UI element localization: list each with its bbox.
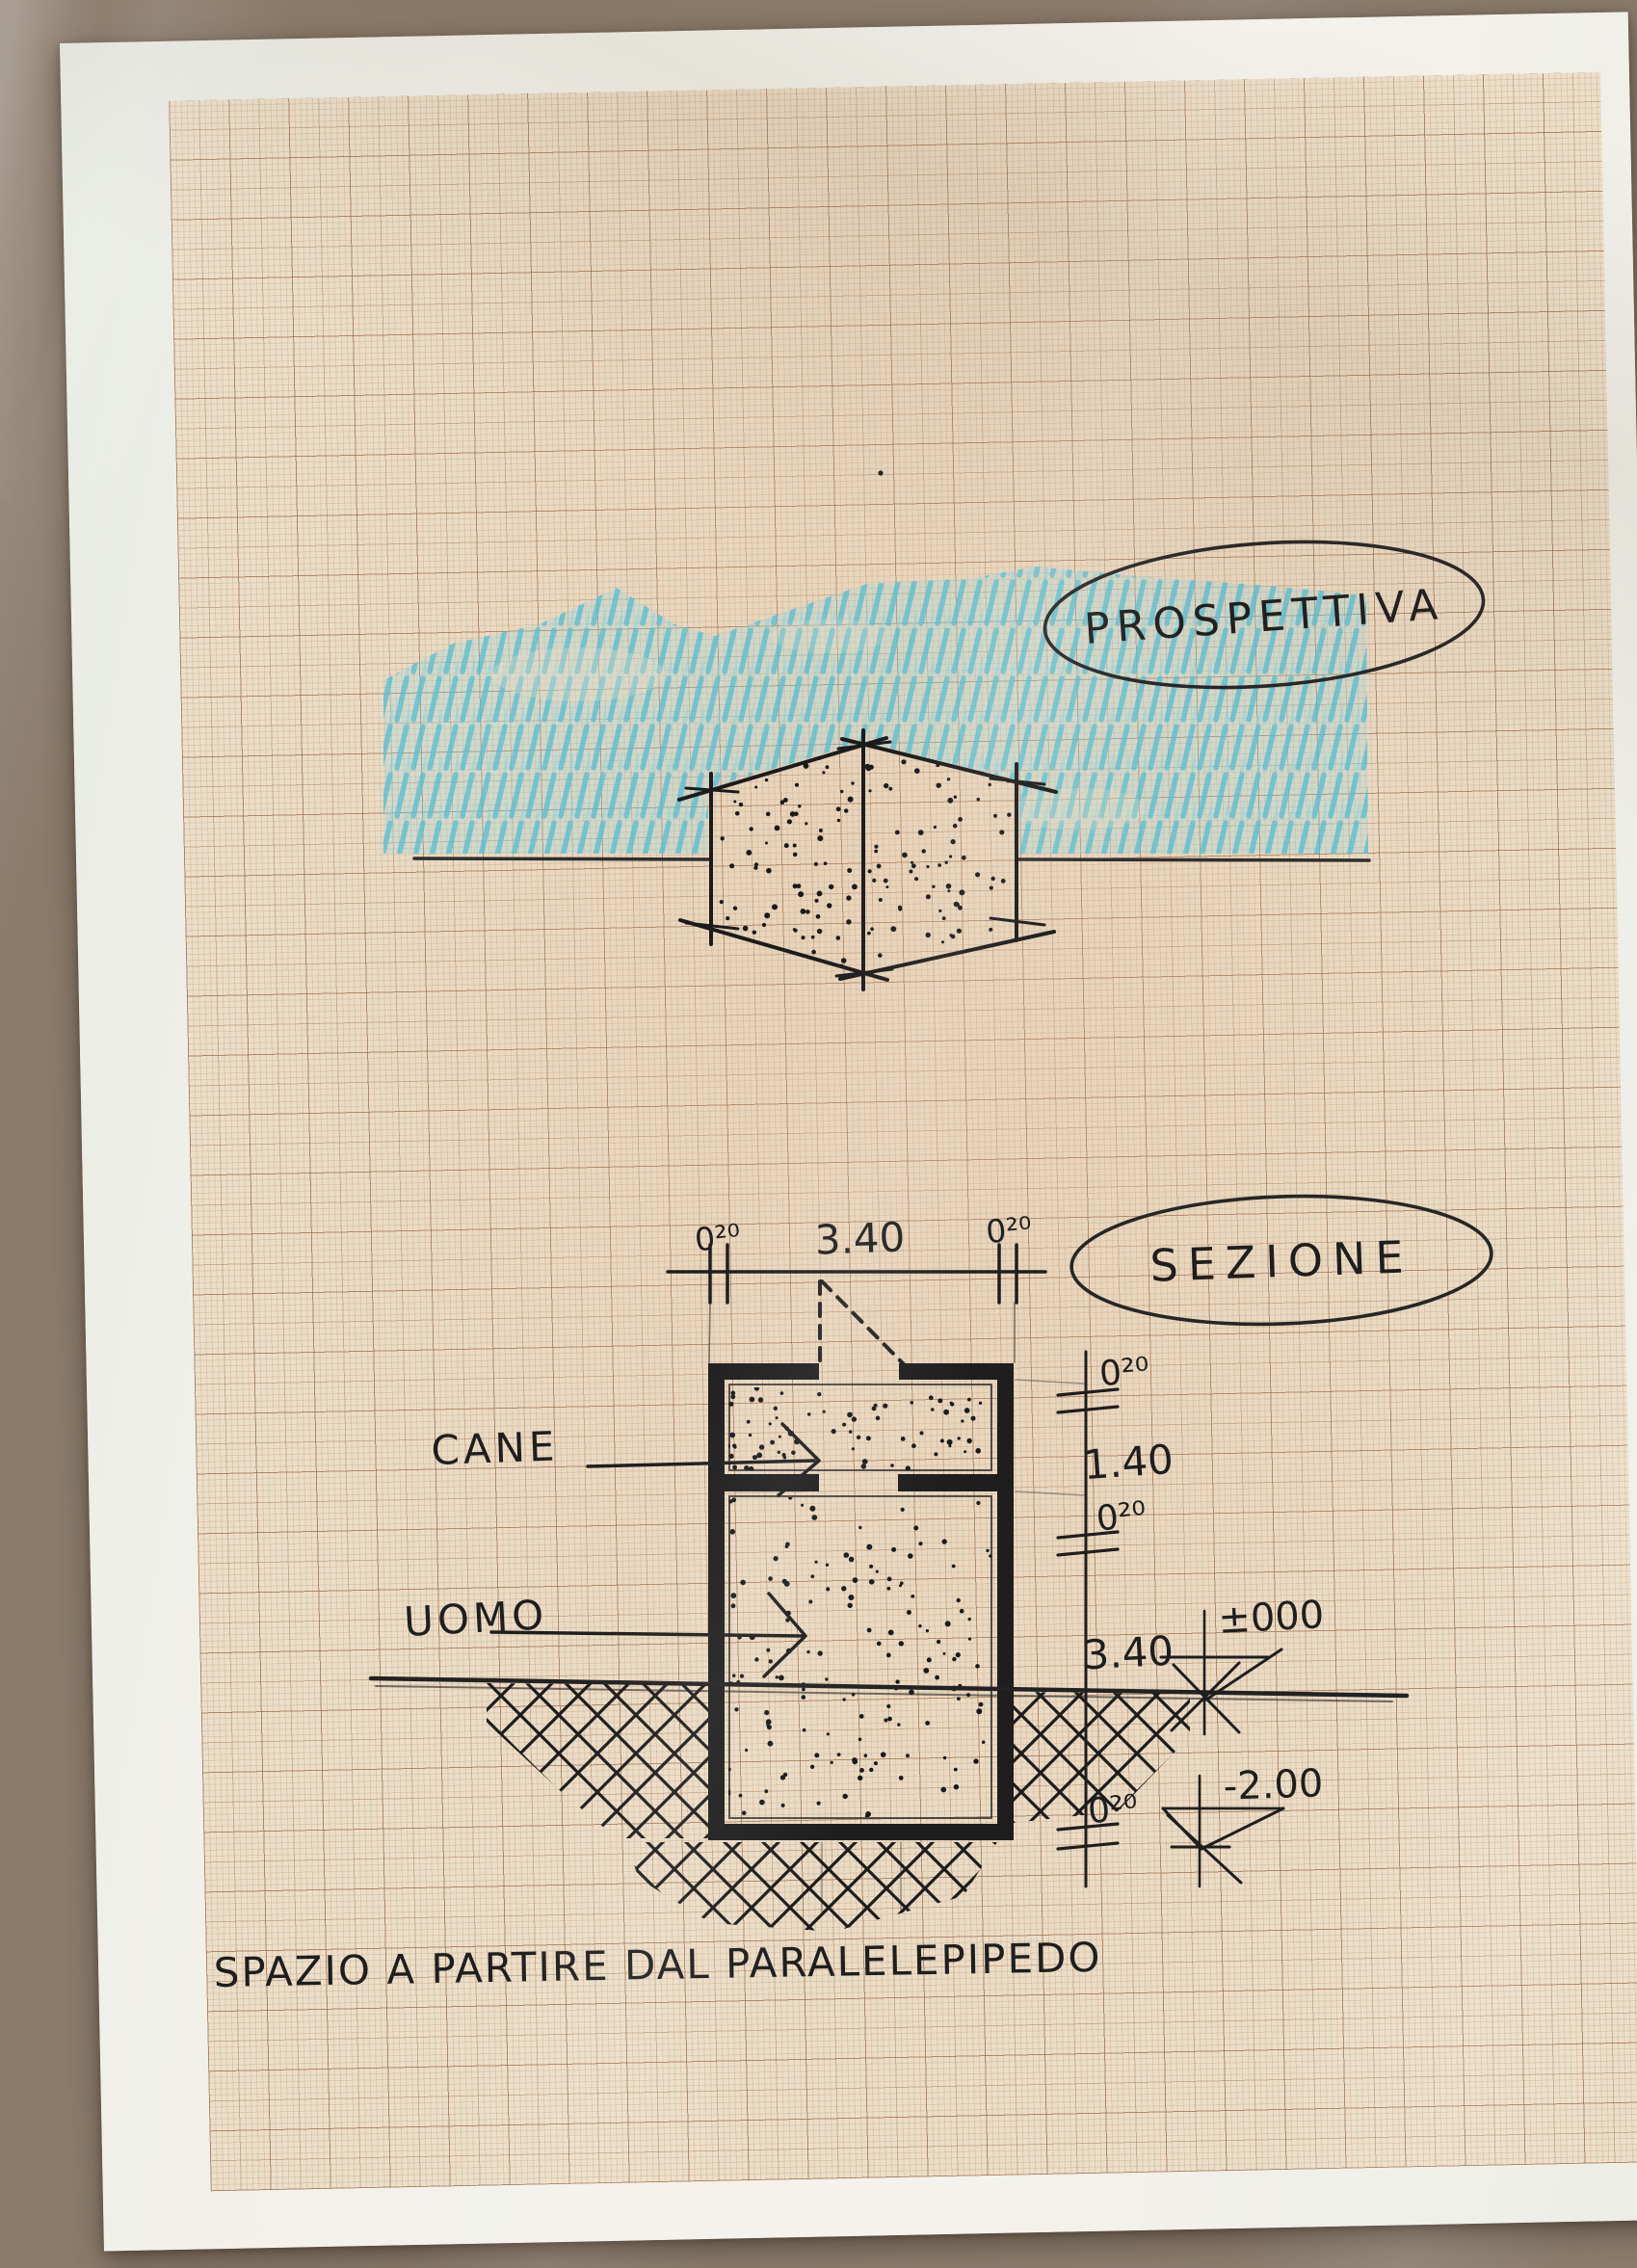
dim-right-wall-bottom: 0²⁰	[1086, 1788, 1139, 1832]
perspective-drawing: PROSPETTIVA	[383, 470, 1489, 989]
inner-outline-top-chamber	[729, 1385, 991, 1470]
dim-right-uomo-height: 3.40	[1082, 1627, 1175, 1679]
photo-background: PROSPETTIVA SEZIONE 0²⁰ 3.40 0²⁰	[0, 0, 1637, 2268]
sketch-drawing: PROSPETTIVA SEZIONE 0²⁰ 3.40 0²⁰	[0, 0, 1637, 2268]
divider-wall-left	[725, 1474, 819, 1491]
dim-top-left: 0²⁰	[693, 1217, 742, 1259]
sezione-label: SEZIONE	[1149, 1230, 1414, 1291]
chamber-top-stipple	[726, 1385, 982, 1471]
dim-top-middle: 3.40	[814, 1213, 906, 1263]
divider-wall-right	[898, 1474, 997, 1491]
caption-text: SPAZIO A PARTIRE DAL PARALELEPIPEDO	[213, 1934, 1102, 1996]
sezione-bubble: SEZIONE	[1069, 1189, 1493, 1331]
cane-label: CANE	[431, 1422, 560, 1474]
top-dimension-line	[668, 1245, 1045, 1362]
level-bottom-label: -2.00	[1223, 1761, 1324, 1809]
section-drawing: SEZIONE 0²⁰ 3.40 0²⁰	[371, 1189, 1493, 1932]
level-ground-label: ±000	[1217, 1593, 1325, 1643]
horizon-line-left	[414, 858, 709, 859]
horizon-line-right	[1018, 859, 1369, 860]
dim-top-right: 0²⁰	[985, 1209, 1034, 1251]
stray-ink-dot	[878, 470, 883, 475]
uomo-label: UOMO	[403, 1591, 548, 1646]
dim-right-wall-mid: 0²⁰	[1095, 1494, 1149, 1539]
dim-right-wall-top: 0²⁰	[1097, 1351, 1150, 1394]
chamber-bottom-stipple	[726, 1495, 991, 1818]
hatch-door-dashed	[820, 1281, 904, 1364]
dim-right-cane-height: 1.40	[1082, 1436, 1175, 1489]
